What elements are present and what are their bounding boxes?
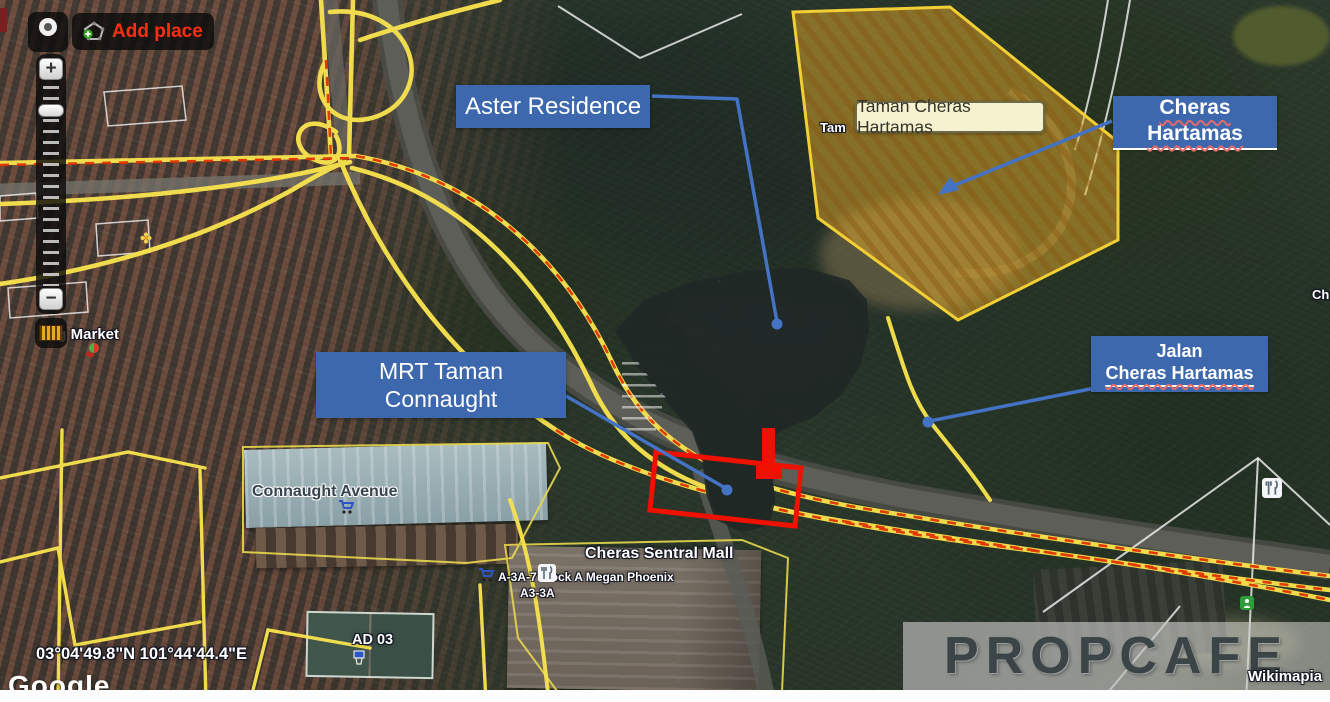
zoom-in-button[interactable]: + <box>39 58 63 80</box>
basketball-hoop-icon <box>352 650 366 666</box>
propcafe-watermark-text: PROPCAFE <box>944 626 1289 686</box>
callout-cheras-hartamas: Cheras Hartamas <box>1113 96 1277 149</box>
megan-phoenix-label[interactable]: A-3A-7 block A Megan Phoenix <box>498 570 674 584</box>
add-place-button[interactable]: Add place <box>72 13 214 50</box>
cheras-sentral-mall-label[interactable]: Cheras Sentral Mall <box>585 545 734 563</box>
ad03-label[interactable]: AD 03 <box>352 632 393 648</box>
zoom-out-button[interactable]: − <box>39 288 63 310</box>
connaught-avenue-label[interactable]: Connaught Avenue <box>252 483 397 501</box>
callout-jalan-line1: Jalan <box>1156 341 1202 363</box>
callout-mrt-line2: Connaught <box>385 385 498 413</box>
map-canvas[interactable]: Tam ing Market Connaught Avenue Cheras S… <box>0 0 1330 702</box>
callout-aster-residence: Aster Residence <box>456 85 650 128</box>
callout-aster-residence-text: Aster Residence <box>465 92 641 121</box>
block-a3-label[interactable]: A3-3A <box>520 586 555 600</box>
polygon-ghost-label: Tam <box>820 120 846 135</box>
flower-icon <box>140 232 152 244</box>
ruler-icon <box>39 325 63 341</box>
fruit-market-icon <box>84 342 100 358</box>
callout-mrt-line1: MRT Taman <box>379 357 503 385</box>
green-poi-icon <box>1240 596 1254 610</box>
callout-mrt-taman-connaught: MRT Taman Connaught <box>316 352 566 418</box>
zoom-handle[interactable] <box>38 104 64 117</box>
zoom-slider[interactable]: + − <box>36 54 66 314</box>
shopping-cart-icon-2 <box>478 568 494 582</box>
callout-cheras-text: Cheras Hartamas <box>1147 96 1243 145</box>
callout-jalan-line2: Cheras Hartamas <box>1105 363 1253 383</box>
callout-taman-cheras-hartamas: Taman Cheras Hartamas <box>855 101 1045 133</box>
locate-icon <box>39 18 57 36</box>
highlight-polygon-taman-cheras-hartamas <box>793 7 1118 320</box>
restaurant-icon-2 <box>1262 478 1282 498</box>
shopping-cart-icon <box>338 500 354 514</box>
measure-tool-button[interactable] <box>35 318 67 348</box>
coordinates-readout: 03°04'49.8"N 101°44'44.4"E <box>36 645 247 664</box>
edge-label: Ch <box>1312 287 1329 302</box>
restaurant-icon <box>538 564 556 582</box>
callout-taman-text: Taman Cheras Hartamas <box>857 96 1043 138</box>
callout-jalan-cheras-hartamas: Jalan Cheras Hartamas <box>1091 336 1268 392</box>
add-place-label: Add place <box>112 21 203 43</box>
bottom-strip <box>0 690 1330 702</box>
wikimapia-credit[interactable]: Wikimapia <box>1248 668 1322 685</box>
locate-button[interactable] <box>28 12 68 52</box>
add-place-polygon-icon <box>83 21 105 43</box>
